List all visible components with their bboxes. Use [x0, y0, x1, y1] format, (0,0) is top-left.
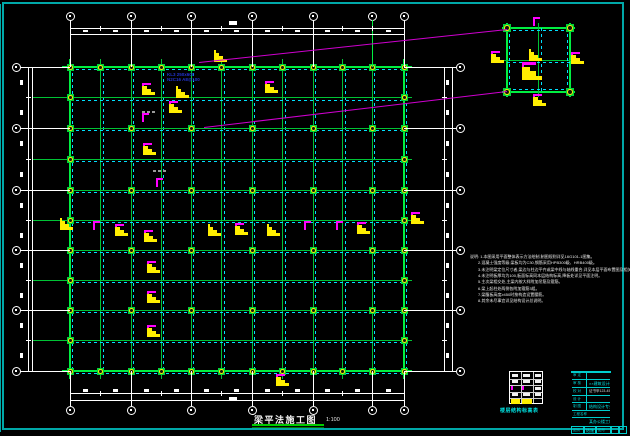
grid-line-horizontal [62, 66, 412, 68]
flag-yellow-step [529, 55, 538, 58]
dim-tick [313, 391, 314, 396]
dim-value-blob [174, 389, 179, 392]
column-node-circle [402, 157, 407, 162]
beam-line-dashed-horizontal [70, 312, 404, 313]
rebar-flag-my [491, 51, 507, 65]
column-node-circle [68, 157, 73, 162]
column-node-circle [280, 65, 285, 70]
flag-yellow-step [276, 383, 289, 386]
flag-yellow-step [571, 61, 584, 64]
dim-value-blob [446, 110, 449, 115]
title-block-value: 某办公楼工程 [589, 419, 610, 425]
column-node-circle [98, 369, 103, 374]
rebar-flag-my [144, 230, 160, 244]
drawing-canvas: KL3 250x600 N2C16 A8@100 说明: 1.本图采用平面整体表… [0, 0, 630, 436]
flag-yellow-step [176, 92, 185, 95]
axis-bubble-glyph [190, 15, 192, 18]
flag-magenta-cap [142, 113, 149, 115]
axis-stem-right [404, 310, 456, 311]
flag-yellow-step [235, 226, 240, 229]
detail-beam-dash-v [509, 28, 510, 92]
flag-yellow-step [571, 55, 576, 58]
column-node-circle [129, 248, 134, 253]
dim-value-blob [386, 30, 391, 33]
detail-corner-node [567, 89, 573, 95]
axis-bubble-glyph [251, 15, 253, 18]
dim-tick [26, 97, 31, 98]
dim-value-blob [325, 30, 330, 33]
beam-line-dashed-horizontal [70, 100, 404, 101]
column-node-circle [159, 65, 164, 70]
column-node-circle [370, 126, 375, 131]
column-node-circle [370, 308, 375, 313]
flag-magenta-cap [156, 178, 163, 180]
title-block-label: 制 图 [573, 404, 581, 409]
rebar-flag-m [142, 113, 158, 127]
floor-table-text-blob [512, 380, 518, 383]
note-line: 3.未注明梁定位尺寸者,梁边与柱边平齐或梁中线与轴线重合,详见本层平面布置图及相… [478, 267, 630, 273]
rebar-flag-m [336, 221, 352, 235]
dim-value-blob [204, 30, 209, 33]
title-block-bottom-cell [611, 426, 619, 434]
dim-tick [100, 391, 101, 396]
flag-magenta-cap [533, 17, 540, 19]
rebar-flag-my [276, 374, 292, 388]
beam-line-dashed-horizontal [70, 161, 404, 162]
grid-line-horizontal [33, 97, 412, 98]
dim-value-blob [144, 30, 149, 33]
dim-value-blob [446, 141, 449, 146]
caption-underline [252, 424, 324, 426]
gray-dash-line [153, 170, 166, 172]
dim-tick [404, 391, 405, 396]
flag-yellow-step [267, 233, 280, 236]
column-node-circle [129, 126, 134, 131]
title-block-row: 审 定 [572, 372, 610, 380]
rebar-flag-y [267, 224, 283, 238]
dim-value-blob [204, 389, 209, 392]
floor-table [509, 371, 543, 404]
dim-tick [313, 26, 314, 31]
floor-table-magenta-mark [522, 386, 524, 390]
axis-bubble-glyph [15, 127, 17, 130]
column-node-circle [250, 248, 255, 253]
axis-bubble-glyph [130, 15, 132, 18]
flag-yellow-step [144, 233, 149, 236]
flag-yellow-step [60, 221, 65, 224]
dim-value-blob [20, 141, 23, 146]
column-node-circle [402, 278, 407, 283]
floor-table-vline [533, 372, 534, 403]
title-block-label: 工程名称 [573, 412, 587, 417]
caption-underline-shadow [252, 427, 324, 428]
dim-tick [161, 26, 162, 31]
grid-line-horizontal [33, 220, 412, 221]
floor-table-yellow-mark [522, 399, 531, 404]
dim-tick [282, 26, 283, 31]
dim-tick [442, 67, 447, 68]
dim-tick [442, 371, 447, 372]
dim-line-right-2 [452, 67, 453, 371]
flag-yellow-step [571, 58, 580, 61]
flag-yellow-step [60, 227, 73, 230]
flag-yellow-step [144, 236, 153, 239]
dim-tick [442, 190, 447, 191]
dim-tick [442, 220, 447, 221]
flag-yellow-step [169, 107, 178, 110]
dim-tick [342, 26, 343, 31]
column-node-circle [250, 126, 255, 131]
flag-yellow-step [169, 110, 182, 113]
flag-yellow-step [208, 227, 213, 230]
flag-yellow-step [115, 230, 124, 233]
column-node-circle [370, 248, 375, 253]
title-block-bottom-cell: 结施 [584, 426, 596, 434]
dim-tick [26, 310, 31, 311]
flag-magenta-cap [304, 221, 311, 223]
dim-tick [191, 391, 192, 396]
dim-tick [26, 128, 31, 129]
axis-bubble-glyph [459, 249, 461, 252]
rebar-flag-my [235, 223, 251, 237]
flag-yellow-step [147, 297, 156, 300]
axis-bubble-glyph [403, 409, 405, 412]
column-node-circle [219, 65, 224, 70]
flag-yellow-step [142, 92, 155, 95]
flag-yellow-step [276, 380, 285, 383]
column-node-circle [129, 308, 134, 313]
flag-yellow-step [176, 95, 189, 98]
floor-table-text-blob [512, 393, 518, 396]
drawing-frame-margin-line [0, 4, 1, 432]
rebar-flag-m [156, 178, 172, 192]
grid-line-horizontal [62, 250, 412, 251]
dim-tick [26, 280, 31, 281]
dim-line-left-2 [32, 67, 33, 371]
axis-bubble-glyph [15, 189, 17, 192]
dim-tick [442, 310, 447, 311]
dim-line-top-2 [70, 34, 404, 35]
axis-bubble-glyph [459, 189, 461, 192]
column-node-circle [250, 308, 255, 313]
grid-line-horizontal [62, 310, 412, 311]
flag-yellow-step [235, 232, 248, 235]
flag-magenta-cap [522, 62, 536, 65]
flag-yellow-step [147, 270, 160, 273]
dim-tick [221, 391, 222, 396]
dim-value-blob [295, 389, 300, 392]
beam-line-dashed-horizontal [70, 282, 404, 283]
axis-bubble-glyph [403, 15, 405, 18]
rebar-flag-my [147, 325, 163, 339]
rebar-flag-m [304, 221, 320, 235]
column-node-circle [189, 126, 194, 131]
grid-line-horizontal [62, 370, 412, 372]
flag-yellow-step [411, 218, 420, 221]
beam-line-dashed-horizontal [70, 192, 404, 193]
flag-yellow-step [142, 86, 147, 89]
axis-bubble-glyph [130, 409, 132, 412]
flag-yellow-step [276, 377, 281, 380]
rebar-flag-my [142, 83, 158, 97]
rebar-flag-my [411, 212, 427, 226]
rebar-flag-y [176, 86, 192, 100]
title-block-bottom-text: 图号 [598, 428, 605, 433]
rebar-flag-my [357, 222, 373, 236]
title-block-row: 校 对证书甲123-456 [572, 388, 610, 396]
title-block-bottom-cell: 图号 [596, 426, 611, 434]
flag-yellow-step [529, 58, 542, 61]
floor-table-text-blob [523, 374, 529, 377]
title-block-label: 审 核 [573, 381, 581, 386]
title-block-bottom-cell: 图别 [571, 426, 584, 434]
grid-line-horizontal [62, 128, 412, 129]
rebar-flag-y [529, 49, 545, 63]
column-node-circle [68, 278, 73, 283]
detail-beam-dash-v [567, 28, 568, 92]
dim-tick [191, 26, 192, 31]
axis-stem-right [404, 250, 456, 251]
dim-value-blob [144, 389, 149, 392]
flag-yellow-step [491, 57, 500, 60]
column-node-circle [159, 369, 164, 374]
flag-yellow-step [533, 103, 546, 106]
detail-corner-node [567, 25, 573, 31]
axis-bubble-glyph [15, 370, 17, 373]
flag-yellow-step [147, 264, 152, 267]
flag-yellow-step [522, 76, 542, 81]
dim-value-blob [113, 389, 118, 392]
dim-line-bottom-1 [70, 393, 404, 394]
flag-yellow-step [265, 90, 278, 93]
grid-line-horizontal [33, 280, 412, 281]
beam-line-dashed-horizontal [70, 342, 404, 343]
axis-bubble-glyph [371, 15, 373, 18]
dim-tick [442, 128, 447, 129]
rebar-flag-my [571, 52, 587, 66]
beam-label-line2: N2C16 A8@100 [167, 77, 200, 82]
floor-table-text-blob [535, 393, 541, 396]
dim-value-blob [20, 80, 23, 85]
flag-yellow-step [411, 215, 416, 218]
dim-tick [131, 26, 132, 31]
dim-line-bottom-2 [70, 400, 404, 401]
detail-beam-dash-h [507, 89, 570, 90]
beam-line-dashed-horizontal [70, 373, 404, 374]
dim-tick [161, 391, 162, 396]
dim-tick [100, 26, 101, 31]
column-node-circle [189, 188, 194, 193]
beam-reinforcement-label: KL3 250x600 N2C16 A8@100 [167, 72, 200, 82]
title-block-bottom-text: 图别 [573, 428, 580, 433]
rebar-flag-y [208, 224, 224, 238]
column-node-circle [311, 308, 316, 313]
flag-yellow-step [533, 97, 538, 100]
flag-yellow-step [265, 84, 270, 87]
title-block-value: 结构设计专业 [589, 404, 610, 410]
dim-value-blob [355, 389, 360, 392]
flag-yellow-step [143, 152, 156, 155]
title-block-row: 设 计 [572, 396, 610, 403]
axis-bubble-glyph [312, 409, 314, 412]
dim-value-blob [234, 30, 239, 33]
dim-tick [26, 159, 31, 160]
rebar-flag-m [533, 17, 549, 31]
flag-yellow-step [267, 227, 272, 230]
column-node-circle [68, 338, 73, 343]
beam-line-dashed-horizontal [70, 69, 404, 70]
flag-yellow-step [411, 221, 424, 224]
note-line: 2.混凝土强度等级:梁板均为C30,钢筋采用HPB300级、HRB400级。 [478, 260, 597, 266]
flag-yellow-step [208, 230, 217, 233]
flag-yellow-step [491, 54, 496, 57]
title-block-label: 设 计 [573, 397, 581, 402]
dim-tick [70, 391, 71, 396]
floor-table-text-blob [523, 380, 529, 383]
rebar-flag-Y [522, 62, 538, 76]
floor-table-text-blob [523, 393, 529, 396]
axis-bubble-glyph [312, 15, 314, 18]
axis-bubble-glyph [459, 127, 461, 130]
dim-value-blob [20, 263, 23, 268]
axis-stem-right [404, 190, 456, 191]
flag-yellow-step [491, 60, 504, 63]
dim-value-blob [234, 389, 239, 392]
grid-line-horizontal [33, 159, 412, 160]
dim-value-blob [265, 389, 270, 392]
flag-yellow-step [147, 328, 152, 331]
column-node-circle [370, 188, 375, 193]
note-line: 8.其余未尽事宜详见结构设计总说明。 [478, 298, 545, 304]
column-node-circle [250, 188, 255, 193]
dim-value-blob [20, 203, 23, 208]
flag-yellow-step [357, 228, 366, 231]
column-node-circle [340, 65, 345, 70]
flag-yellow-step [115, 227, 120, 230]
axis-stem-right [404, 371, 456, 372]
floor-table-caption: 楼层结构标高表 [500, 407, 539, 414]
flag-yellow-step [235, 229, 244, 232]
flag-yellow-step [142, 89, 151, 92]
dim-tick [404, 26, 405, 31]
axis-bubble-glyph [69, 409, 71, 412]
rebar-flag-my [265, 81, 281, 95]
title-block-bottom-text: 结施 [586, 428, 594, 434]
flag-yellow-step [265, 87, 274, 90]
axis-bubble-glyph [251, 409, 253, 412]
dim-tick [26, 250, 31, 251]
dim-tick [252, 391, 253, 396]
dim-value-blob [83, 389, 88, 392]
floor-table-magenta-mark [511, 386, 513, 390]
floor-table-yellow-mark [511, 399, 520, 404]
flag-yellow-step [143, 149, 152, 152]
title-block-row: 工程名称 [572, 411, 610, 418]
flag-yellow-step [176, 89, 181, 92]
dim-value-blob [174, 30, 179, 33]
beam-line-dashed-horizontal [70, 252, 404, 253]
dim-value-blob [446, 323, 449, 328]
flag-magenta-cap [93, 221, 100, 223]
column-node-circle [98, 65, 103, 70]
column-node-circle [189, 308, 194, 313]
flag-yellow-step [529, 52, 534, 55]
axis-stem-right [404, 128, 456, 129]
dim-value-blob [446, 263, 449, 268]
flag-yellow-step [357, 231, 370, 234]
flag-yellow-step [144, 239, 157, 242]
dim-tick [442, 250, 447, 251]
axis-bubble-glyph [15, 66, 17, 69]
axis-bubble-glyph [459, 309, 461, 312]
flag-yellow-step [147, 267, 156, 270]
flag-yellow-step [533, 100, 542, 103]
axis-bubble-glyph [15, 249, 17, 252]
column-node-circle [219, 369, 224, 374]
rebar-flag-my [533, 94, 549, 108]
rebar-flag-m [93, 221, 109, 235]
dim-value-blob [113, 30, 118, 33]
axis-bubble-glyph [459, 66, 461, 69]
title-block-value: 证书甲123-456 [589, 389, 610, 394]
dim-value-blob [446, 203, 449, 208]
column-node-circle [402, 218, 407, 223]
dim-value-blob [325, 389, 330, 392]
floor-table-text-blob [535, 387, 541, 390]
title-block-bottom-cell [619, 426, 627, 434]
rebar-flag-y [214, 50, 230, 64]
rebar-flag-my [143, 143, 159, 157]
dim-value-blob [20, 110, 23, 115]
dim-value-blob [265, 30, 270, 33]
title-block-row: 审 核××建筑设计院 [572, 380, 610, 388]
flag-yellow-step [522, 71, 536, 76]
note-line: 5.主次梁相交处,主梁内按大样附加吊筋及箍筋。 [478, 279, 562, 285]
grid-line-horizontal [33, 340, 412, 341]
axis-bubble-glyph [190, 409, 192, 412]
dim-value-blob [446, 172, 449, 177]
dim-tick [442, 340, 447, 341]
dim-value-blob [20, 353, 23, 358]
dim-tick [131, 391, 132, 396]
title-block-table: 审 定审 核××建筑设计院校 对证书甲123-456设 计制 图结构设计专业工程… [571, 371, 611, 373]
dim-tick [252, 26, 253, 31]
flag-yellow-step [267, 230, 276, 233]
flag-yellow-step [143, 146, 148, 149]
note-line: 6.梁上起柱处两侧各附加箍筋3组。 [478, 286, 540, 292]
column-node-circle [311, 188, 316, 193]
dim-tick [442, 280, 447, 281]
dim-value-blob [20, 323, 23, 328]
column-node-circle [68, 95, 73, 100]
flag-yellow-step [147, 331, 156, 334]
column-node-circle [311, 248, 316, 253]
dim-value-blob [446, 293, 449, 298]
axis-stem-right [404, 67, 456, 68]
axis-bubble-glyph [69, 15, 71, 18]
floor-table-text-blob [512, 374, 518, 377]
dim-value-blob [20, 293, 23, 298]
dim-value-blob [20, 172, 23, 177]
column-node-circle [129, 188, 134, 193]
floor-table-text-blob [535, 374, 541, 377]
dim-tick [26, 67, 31, 68]
dim-value-blob [20, 233, 23, 238]
title-block-label: 审 定 [573, 373, 581, 378]
dim-value-blob [386, 389, 391, 392]
total-dim-value-blob [229, 21, 237, 25]
dim-tick [26, 220, 31, 221]
